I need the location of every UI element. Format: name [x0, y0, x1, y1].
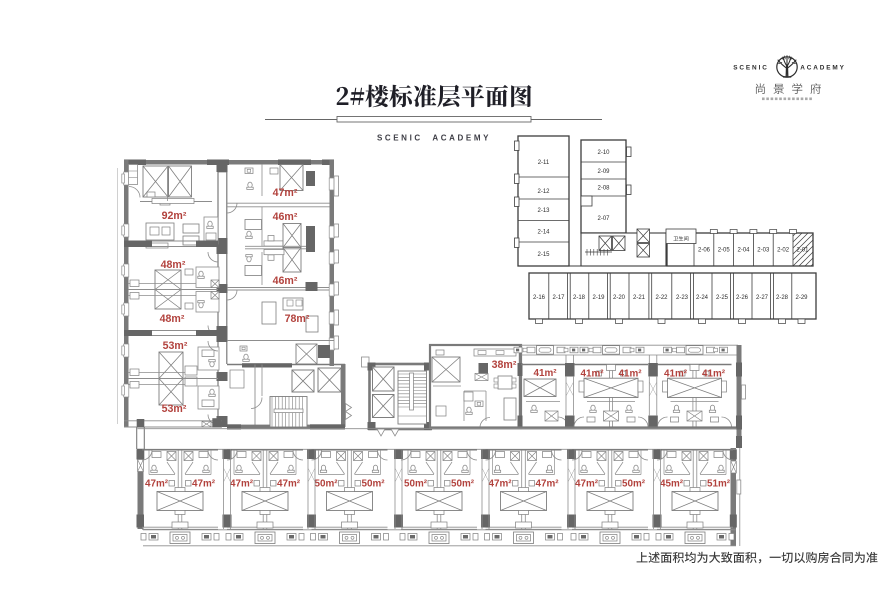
svg-text:92m²: 92m²: [162, 210, 187, 222]
svg-text:2-27: 2-27: [756, 295, 769, 301]
svg-text:47m²: 47m²: [575, 479, 599, 490]
svg-text:48m²: 48m²: [161, 259, 186, 271]
svg-text:2-25: 2-25: [716, 295, 729, 301]
svg-text:2-16: 2-16: [533, 295, 546, 301]
svg-text:46m²: 46m²: [273, 275, 298, 287]
svg-text:41m²: 41m²: [533, 368, 557, 379]
svg-text:50m²: 50m²: [622, 479, 646, 490]
svg-text:2-10: 2-10: [597, 150, 610, 156]
svg-text:53m²: 53m²: [163, 340, 188, 352]
svg-text:48m²: 48m²: [160, 313, 185, 325]
svg-text:45m²: 45m²: [660, 479, 684, 490]
svg-text:38m²: 38m²: [492, 359, 517, 371]
svg-text:2-08: 2-08: [597, 186, 610, 192]
svg-text:2-11: 2-11: [538, 160, 550, 166]
svg-text:47m²: 47m²: [535, 479, 559, 490]
svg-text:2-26: 2-26: [736, 295, 749, 301]
svg-text:50m²: 50m²: [314, 479, 338, 490]
svg-text:41m²: 41m²: [702, 369, 726, 380]
svg-text:2-07: 2-07: [597, 216, 610, 222]
svg-text:2-23: 2-23: [676, 295, 689, 301]
svg-text:47m²: 47m²: [192, 479, 216, 490]
svg-text:SCENIC ACADEMY: SCENIC ACADEMY: [377, 134, 491, 143]
svg-text:2-21: 2-21: [633, 295, 646, 301]
svg-text:2-17: 2-17: [552, 295, 565, 301]
svg-text:2-22: 2-22: [655, 295, 668, 301]
svg-text:47m²: 47m²: [273, 187, 298, 199]
svg-text:2-14: 2-14: [537, 230, 550, 236]
svg-text:2-18: 2-18: [573, 295, 586, 301]
svg-text:47m²: 47m²: [277, 479, 301, 490]
svg-text:2-28: 2-28: [776, 295, 789, 301]
svg-text:46m²: 46m²: [273, 211, 298, 223]
svg-text:2-13: 2-13: [537, 208, 550, 214]
svg-text:41m²: 41m²: [618, 369, 642, 380]
svg-text:2-02: 2-02: [777, 248, 790, 254]
svg-text:2-19: 2-19: [592, 295, 605, 301]
svg-text:2-15: 2-15: [537, 252, 550, 258]
svg-text:2-05: 2-05: [718, 248, 731, 254]
svg-text:47m²: 47m²: [488, 479, 512, 490]
svg-text:SCENIC: SCENIC: [733, 65, 769, 72]
svg-text:41m²: 41m²: [580, 369, 604, 380]
svg-text:2-12: 2-12: [537, 189, 550, 195]
svg-text:53m²: 53m²: [162, 403, 187, 415]
svg-text:2-09: 2-09: [597, 169, 610, 175]
svg-text:78m²: 78m²: [285, 313, 310, 325]
svg-text:47m²: 47m²: [145, 479, 169, 490]
svg-text:2-04: 2-04: [737, 248, 750, 254]
svg-text:2-01: 2-01: [796, 248, 809, 254]
svg-text:2-03: 2-03: [757, 248, 770, 254]
svg-text:ACADEMY: ACADEMY: [800, 65, 846, 72]
svg-text:50m²: 50m²: [451, 479, 475, 490]
svg-text:50m²: 50m²: [361, 479, 385, 490]
svg-text:51m²: 51m²: [707, 479, 731, 490]
svg-text:47m²: 47m²: [230, 479, 254, 490]
svg-text:2-06: 2-06: [698, 248, 711, 254]
svg-text:50m²: 50m²: [404, 479, 428, 490]
svg-text:2-20: 2-20: [613, 295, 626, 301]
svg-text:41m²: 41m²: [664, 369, 688, 380]
svg-text:2-29: 2-29: [795, 295, 808, 301]
svg-text:2-24: 2-24: [696, 295, 709, 301]
